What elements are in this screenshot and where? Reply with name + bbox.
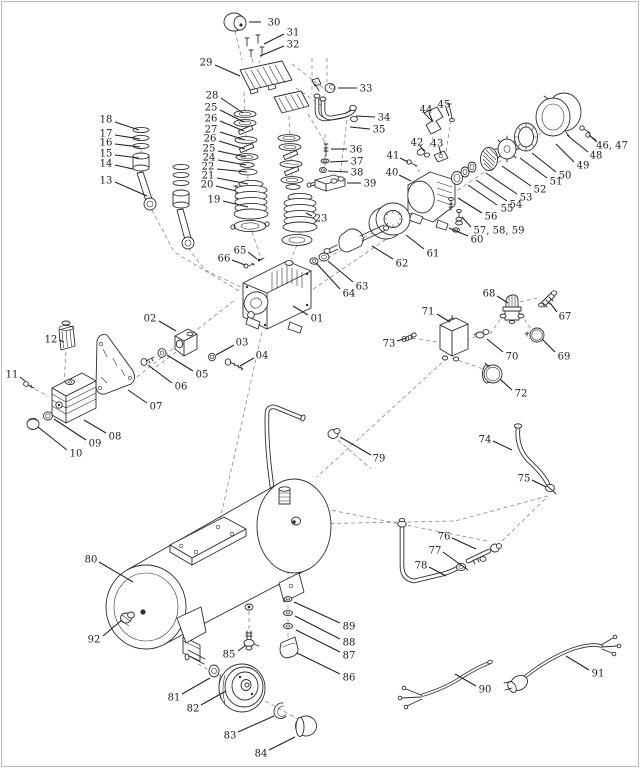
part-label-88: 88: [343, 638, 356, 649]
part-label-49: 49: [577, 161, 590, 172]
part-label-56: 56: [485, 212, 498, 223]
part-label-91: 91: [592, 669, 605, 680]
piston-rod-assembly-2: [173, 164, 194, 249]
diagram-canvas: 3031322928252627262524222120191817161514…: [0, 0, 640, 768]
part-label-82: 82: [187, 704, 200, 715]
leader-line-03: [216, 345, 234, 355]
leader-line-20: [216, 186, 236, 191]
cylinder-19: [231, 180, 269, 231]
part-label-03: 03: [236, 338, 249, 349]
leader-line-05: [167, 355, 193, 371]
part-label-81: 81: [168, 693, 181, 704]
part-label-43: 43: [431, 139, 444, 150]
leader-line-67: [550, 303, 557, 312]
part-label-41: 41: [387, 151, 400, 162]
exploded-parts-diagram: 3031322928252627262524222120191817161514…: [0, 0, 640, 768]
part-label-60: 60: [471, 235, 484, 246]
leader-line-70: [487, 339, 503, 352]
leader-line-28: [221, 98, 243, 113]
part-label-48: 48: [590, 151, 603, 162]
part-label-05: 05: [196, 370, 209, 381]
leader-line-54: [476, 180, 507, 201]
part-label-35: 35: [373, 125, 386, 136]
leader-line-86: [297, 653, 340, 674]
valve-plate-stack-b: [278, 135, 303, 190]
leader-line-71: [437, 314, 450, 322]
part-label-73: 73: [383, 339, 396, 350]
head-bolts: [245, 35, 264, 57]
part-label-89: 89: [343, 622, 356, 633]
part-label-68: 68: [483, 289, 496, 300]
leader-line-07: [128, 390, 147, 403]
leader-line-11: [20, 377, 25, 381]
leader-line-81: [182, 678, 210, 694]
part-label-12: 12: [45, 335, 58, 346]
part-label-61: 61: [427, 249, 440, 260]
leader-line-89: [294, 602, 340, 623]
part-label-86: 86: [343, 673, 356, 684]
part-label-79: 79: [373, 454, 386, 465]
leader-line-08: [84, 420, 106, 433]
leader-line-76: [452, 538, 476, 549]
part-label-16: 16: [100, 138, 113, 149]
part-label-39: 39: [364, 179, 377, 190]
part-label-23: 23: [315, 214, 328, 225]
leader-line-32: [260, 46, 284, 56]
leader-line-02: [159, 321, 176, 331]
leader-line-87: [296, 630, 340, 652]
part-label-85: 85: [223, 650, 236, 661]
leader-line-85: [238, 645, 246, 651]
leader-line-48: [567, 135, 588, 152]
leader-line-49: [556, 144, 574, 162]
leader-line-66: [232, 260, 245, 265]
part-label-70: 70: [506, 352, 519, 363]
part-label-31: 31: [287, 28, 300, 39]
part-label-87: 87: [343, 651, 356, 662]
part-label-14: 14: [100, 159, 113, 170]
leader-line-72: [500, 379, 512, 390]
pressure-switch-group: [402, 291, 557, 383]
part-label-66: 66: [218, 254, 231, 265]
leader-line-29: [215, 65, 240, 76]
part-label-84: 84: [255, 749, 268, 760]
part-label-40: 40: [386, 168, 399, 179]
part-label-32: 32: [287, 40, 300, 51]
part-label-80: 80: [85, 555, 98, 566]
part-label-01: 01: [311, 314, 324, 325]
leader-line-74: [493, 441, 512, 450]
part-label-04: 04: [256, 351, 269, 362]
part-label-52: 52: [534, 185, 547, 196]
part-label-62: 62: [396, 259, 409, 270]
leader-line-83: [238, 716, 274, 732]
part-label-55: 55: [501, 204, 514, 215]
part-label-92: 92: [88, 635, 101, 646]
leader-line-14: [115, 165, 133, 169]
part-label-64: 64: [343, 289, 356, 300]
part-label-26: 26: [205, 114, 218, 125]
part-label-42: 42: [411, 138, 424, 149]
piston-rod-assembly-1: [133, 127, 156, 210]
part-label-67: 67: [559, 312, 572, 323]
part-label-75: 75: [518, 474, 531, 485]
part-label-18: 18: [100, 115, 113, 126]
part-label-77: 77: [429, 546, 442, 557]
part-label-37: 37: [351, 157, 364, 168]
leader-line-84: [269, 737, 295, 750]
part-label-13: 13: [100, 176, 113, 187]
leader-line-18: [115, 122, 139, 130]
part-label-07: 07: [150, 402, 163, 413]
part-label-76: 76: [438, 532, 451, 543]
part-label-33: 33: [360, 84, 373, 95]
part-label-06: 06: [175, 382, 188, 393]
leader-line-10: [38, 427, 67, 450]
part-label-38: 38: [351, 168, 364, 179]
part-label-90: 90: [479, 685, 492, 696]
leader-line-91: [566, 656, 589, 670]
part-label-11: 11: [6, 370, 19, 381]
part-label-02: 02: [144, 314, 157, 325]
part-label-29: 29: [200, 58, 213, 69]
leader-line-38: [328, 171, 348, 172]
part-label-30: 30: [268, 18, 281, 29]
part-label-83: 83: [224, 731, 237, 742]
cylinder-23: [282, 193, 317, 245]
part-label-25: 25: [205, 103, 218, 114]
part-label-36: 36: [350, 145, 363, 156]
part-label-71: 71: [422, 307, 435, 318]
part-label-08: 08: [109, 432, 122, 443]
wheel-assembly: [209, 664, 317, 737]
leader-line-09: [54, 419, 86, 440]
leader-line-37: [330, 161, 348, 162]
leader-line-40: [399, 175, 411, 181]
leader-line-35: [350, 127, 370, 129]
wiring-group: [398, 635, 621, 709]
leader-line-69: [542, 339, 555, 352]
leader-line-04: [240, 358, 254, 366]
leader-line-31: [264, 34, 284, 44]
leader-line-34: [356, 116, 375, 117]
part-label-10: 10: [70, 449, 83, 460]
part-label-69: 69: [558, 352, 571, 363]
crankcase: [241, 258, 311, 333]
part-label-65: 65: [234, 246, 247, 257]
part-label-20: 20: [201, 180, 214, 191]
leader-line-61: [406, 235, 424, 249]
part-label-34: 34: [378, 113, 391, 124]
part-label-28: 28: [206, 91, 219, 102]
leader-line-53: [486, 173, 517, 194]
leader-line-52: [502, 166, 531, 186]
part-label-74: 74: [479, 435, 492, 446]
part-label-44: 44: [420, 105, 433, 116]
part-label-51: 51: [550, 177, 563, 188]
leader-line-24: [218, 160, 246, 165]
leader-line-62: [372, 246, 393, 259]
air-tank-assembly: [106, 407, 340, 664]
leader-line-55: [468, 185, 497, 205]
part-label-45: 45: [438, 100, 451, 111]
part-label-09: 09: [89, 439, 102, 450]
leader-line-41: [400, 158, 408, 162]
part-label-63: 63: [356, 282, 369, 293]
leader-line-57-58-59: [462, 217, 471, 227]
part-label-19: 19: [208, 195, 221, 206]
discharge-tube-group: [398, 424, 556, 581]
leader-line-06: [148, 365, 172, 383]
leader-line-65: [248, 252, 257, 259]
part-label-78: 78: [415, 561, 428, 572]
part-label-72: 72: [515, 389, 528, 400]
